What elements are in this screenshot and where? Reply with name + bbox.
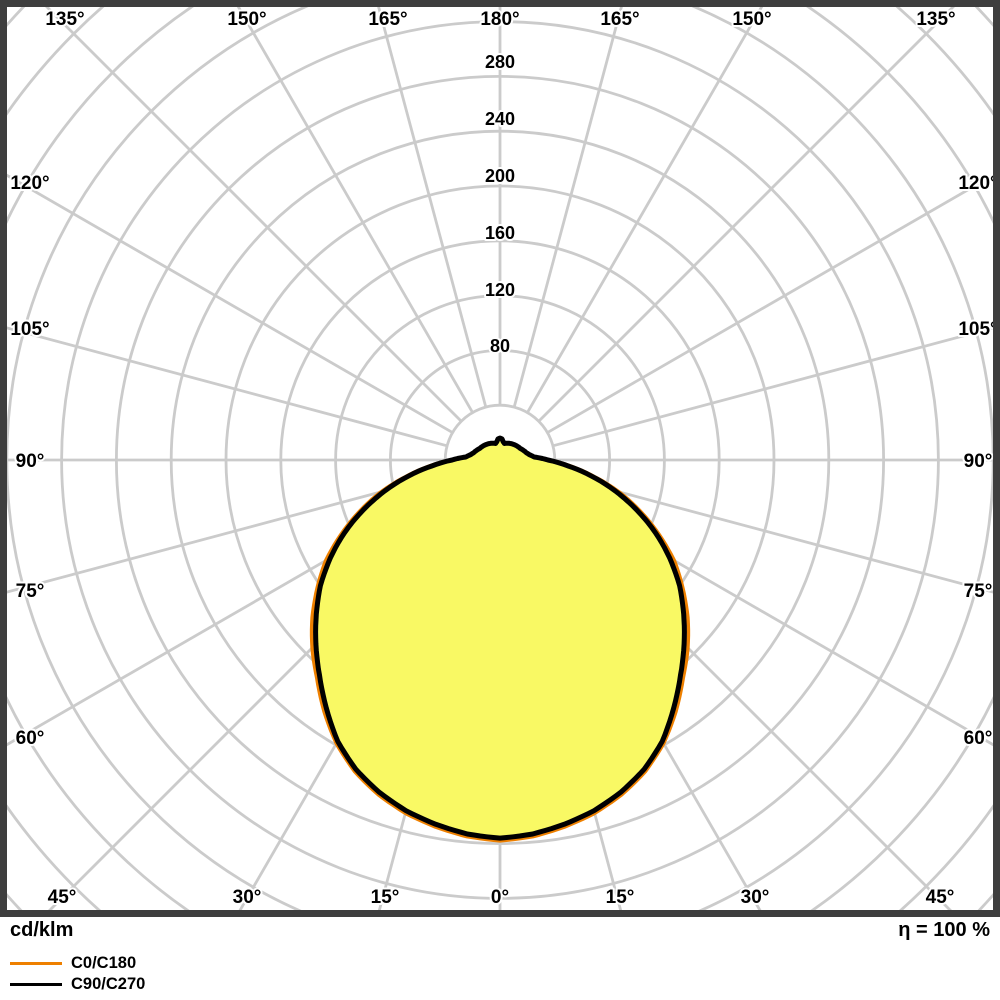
angle-label-top: 135° (916, 9, 955, 30)
angle-label-left: 90° (16, 451, 45, 472)
angle-label-top: 180° (480, 9, 519, 30)
legend-line-c90-c270-swatch (10, 983, 62, 986)
angle-label-bottom: 30° (233, 887, 262, 908)
angle-label-top: 150° (732, 9, 771, 30)
radial-tick-label: 120 (485, 280, 515, 300)
angle-label-left: 120° (10, 173, 49, 194)
angle-label-top: 135° (45, 9, 84, 30)
angle-label-left: 75° (16, 581, 45, 602)
angle-label-right: 90° (964, 451, 993, 472)
radial-tick-label: 240 (485, 109, 515, 129)
radial-tick-label: 80 (490, 336, 510, 356)
radial-tick-label: 160 (485, 223, 515, 243)
angle-label-right: 75° (964, 581, 993, 602)
angle-label-top: 165° (600, 9, 639, 30)
luminous-intensity-polar-chart: 135°150°165°180°165°150°135°45°30°15°0°1… (0, 0, 1000, 1000)
radial-tick-label: 200 (485, 166, 515, 186)
angle-label-bottom: 15° (371, 887, 400, 908)
legend-item-c90-c270: C90/C270 (10, 974, 145, 995)
angle-label-left: 105° (10, 319, 49, 340)
legend-line-c0-c180-swatch (10, 962, 62, 965)
angle-label-top: 165° (368, 9, 407, 30)
photometric-diagram-page: 135°150°165°180°165°150°135°45°30°15°0°1… (0, 0, 1000, 1000)
angle-label-bottom: 0° (491, 887, 509, 908)
legend: C0/C180 C90/C270 (10, 953, 145, 995)
legend-label-c90-c270: C90/C270 (71, 975, 145, 994)
angle-label-right: 105° (958, 319, 997, 340)
unit-label: cd/klm (10, 919, 73, 942)
angle-label-left: 60° (16, 728, 45, 749)
angle-label-right: 120° (958, 173, 997, 194)
legend-label-c0-c180: C0/C180 (71, 954, 136, 973)
angle-label-bottom: 45° (48, 887, 77, 908)
angle-label-top: 150° (227, 9, 266, 30)
angle-label-bottom: 30° (741, 887, 770, 908)
angle-label-right: 60° (964, 728, 993, 749)
radial-tick-label: 280 (485, 52, 515, 72)
legend-item-c0-c180: C0/C180 (10, 953, 145, 974)
efficiency-label: η = 100 % (898, 919, 990, 942)
angle-label-bottom: 15° (606, 887, 635, 908)
angle-label-bottom: 45° (926, 887, 955, 908)
intensity-curves (312, 438, 689, 841)
